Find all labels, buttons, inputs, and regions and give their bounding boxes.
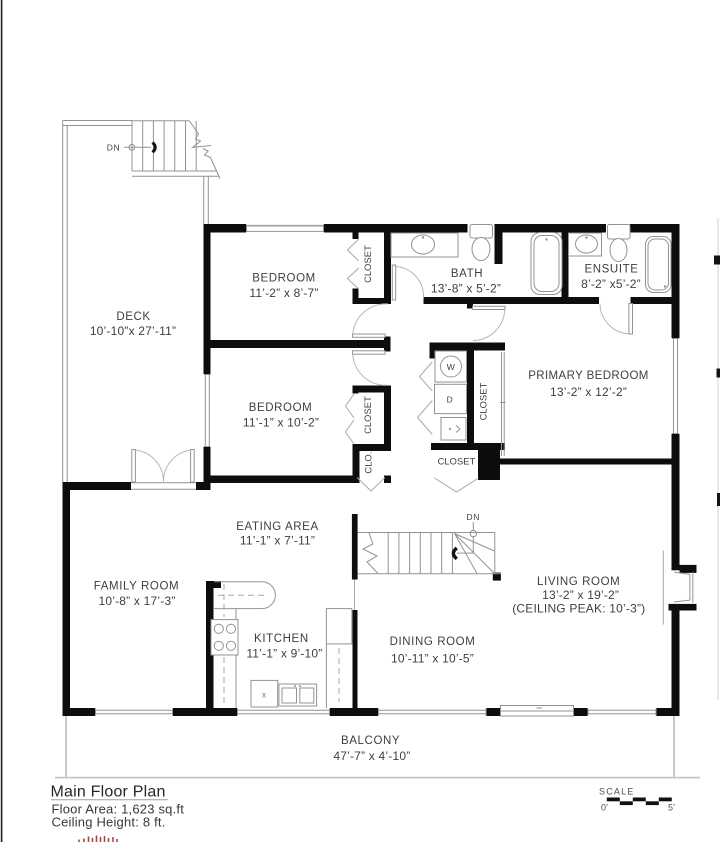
svg-text:FAMILY ROOM: FAMILY ROOM: [94, 581, 179, 593]
svg-text:10’-10”x 27’-11”: 10’-10”x 27’-11”: [90, 324, 176, 338]
svg-text:D: D: [447, 395, 454, 405]
svg-text:13’-2” x 19’-2”: 13’-2” x 19’-2”: [542, 588, 619, 602]
svg-text:DINING ROOM: DINING ROOM: [390, 636, 476, 648]
svg-text:W: W: [447, 362, 456, 372]
svg-text:(CEILING PEAK: 10’-3”): (CEILING PEAK: 10’-3”): [512, 602, 645, 616]
svg-text:BEDROOM: BEDROOM: [249, 402, 313, 414]
svg-text:13’-2” x 12’-2”: 13’-2” x 12’-2”: [550, 385, 627, 399]
svg-text:DECK: DECK: [116, 311, 150, 323]
svg-text:DN: DN: [467, 512, 480, 522]
svg-text:CLOSET: CLOSET: [479, 382, 489, 420]
svg-text:KITCHEN: KITCHEN: [254, 633, 309, 645]
svg-text:CLOSET: CLOSET: [363, 245, 373, 283]
svg-text:CLOSET: CLOSET: [438, 457, 476, 467]
svg-text:11’-2” x 8’-7”: 11’-2” x 8’-7”: [249, 286, 318, 300]
svg-text:0’: 0’: [601, 803, 608, 813]
svg-text:SCALE: SCALE: [599, 787, 635, 797]
svg-text:13’-8” x 5’-2”: 13’-8” x 5’-2”: [431, 282, 501, 296]
svg-text:BATH: BATH: [451, 268, 483, 280]
svg-text:CLOSET: CLOSET: [363, 396, 373, 434]
svg-text:ENSUITE: ENSUITE: [584, 264, 638, 276]
svg-text:BALCONY: BALCONY: [341, 735, 400, 747]
svg-text:CLO.: CLO.: [364, 451, 374, 473]
svg-text:8’-2” x5’-2”: 8’-2” x5’-2”: [581, 277, 641, 291]
svg-text:11’-1” x 9’-10”: 11’-1” x 9’-10”: [246, 647, 322, 661]
svg-text:PRIMARY BEDROOM: PRIMARY BEDROOM: [528, 370, 649, 382]
svg-text:11’-1” x 7’-11”: 11’-1” x 7’-11”: [240, 534, 315, 548]
svg-text:BEDROOM: BEDROOM: [252, 273, 316, 285]
svg-text:Ceiling Height: 8 ft.: Ceiling Height: 8 ft.: [52, 815, 166, 830]
svg-text:EATING AREA: EATING AREA: [236, 521, 318, 533]
svg-text:5’: 5’: [668, 803, 675, 813]
svg-text:11’-1” x 10’-2”: 11’-1” x 10’-2”: [243, 416, 319, 430]
svg-text:10’-8” x 17’-3”: 10’-8” x 17’-3”: [98, 594, 175, 608]
svg-text:Main Floor Plan: Main Floor Plan: [51, 784, 166, 801]
svg-text:x: x: [262, 691, 266, 700]
svg-text:LIVING ROOM: LIVING ROOM: [537, 576, 620, 588]
svg-text:47’-7” x 4’-10”: 47’-7” x 4’-10”: [333, 749, 410, 763]
svg-text:DN: DN: [107, 143, 120, 153]
svg-text:10’-11” x 10’-5”: 10’-11” x 10’-5”: [391, 652, 474, 666]
